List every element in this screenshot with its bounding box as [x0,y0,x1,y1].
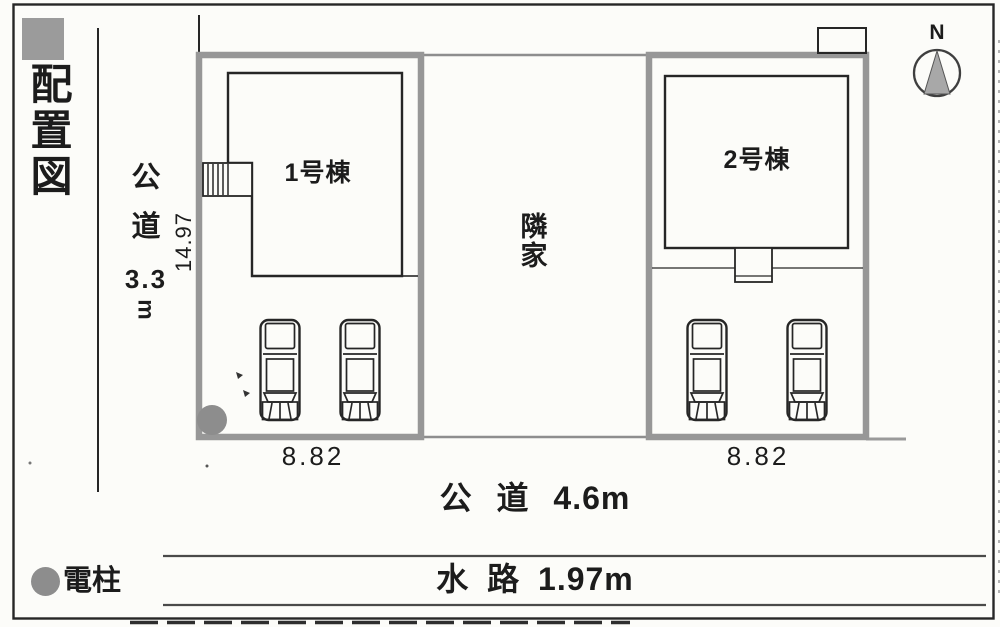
car-icon [341,320,380,420]
utility-pole-icon [31,567,60,596]
neighbor-kanji: 隣 [521,214,548,241]
utility-pole-legend: 電柱 [31,567,121,596]
west-road-kanji: 道 [131,213,160,242]
utility-pole-label: 電柱 [63,567,121,596]
plot-2-frontage-dimension: 8.82 [703,443,813,469]
building-1-label: 1号棟 [256,161,380,186]
utility-pole-dot [197,405,227,435]
title-marker-square [22,18,64,60]
compass-north-label: N [922,22,952,43]
neighbor-kanji: 家 [521,243,548,270]
neighbor-house-label: 隣 家 [518,214,550,270]
waterway-label: 水 路 1.97m [380,563,690,595]
plot-1-frontage-dimension: 8.82 [258,443,368,469]
scan-noise [29,40,1000,623]
west-road-kanji: 公 [131,164,160,193]
north-arrow-icon [924,51,950,94]
compass-icon [914,50,960,96]
car-icon [788,320,827,420]
car-icon [261,320,300,420]
south-road-label: 公 道 4.6m [380,482,690,514]
building-2-porch [735,248,772,282]
site-plan-page: 配置図 公 道 3.3 m 14.97 1号棟 2号棟 隣 家 8.82 8.8… [0,0,1000,627]
west-boundary-dimension: 14.97 [173,207,197,277]
page-title: 配置図 [17,62,69,200]
west-road-unit: m [134,299,157,319]
car-icon [688,320,727,420]
west-road-width: 3.3 [125,266,167,292]
plot-2-annex-box [818,28,866,53]
building-2-label: 2号棟 [695,148,819,173]
west-road-label: 公 道 3.3 m [124,164,168,321]
